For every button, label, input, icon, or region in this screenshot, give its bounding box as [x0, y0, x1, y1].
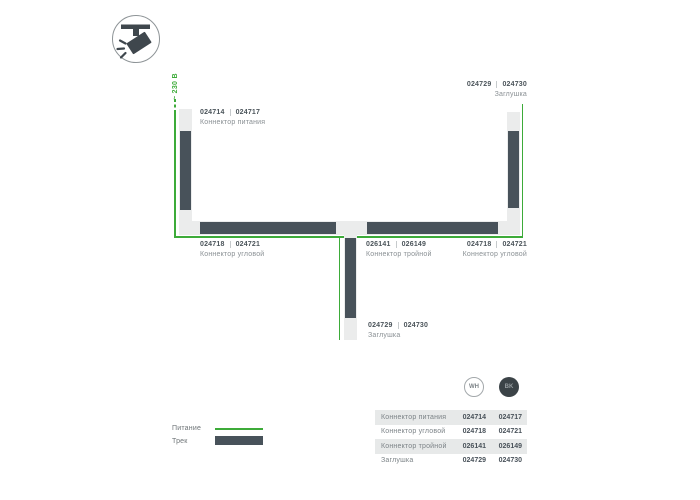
- part-codes: 024729 024730: [368, 322, 428, 329]
- label-endcap-bottom: 024729 024730 Заглушка: [368, 322, 428, 339]
- part-name: Коннектор угловой: [200, 251, 264, 258]
- code-divider: [496, 81, 497, 88]
- part-name-cell: Коннектор угловой: [375, 428, 449, 435]
- part-codes: 024718 024721: [463, 241, 527, 248]
- catalog-page: ~ 230 В 024714 024717 Коннектор питания …: [0, 0, 700, 500]
- power-line-left: [174, 111, 176, 236]
- code-wh: 024718: [467, 241, 492, 248]
- code-bk-cell: 024717: [486, 414, 527, 421]
- code-bk: 024717: [236, 109, 261, 116]
- track-segment-bottom-left: [200, 222, 336, 234]
- power-line-dashed: [174, 99, 176, 111]
- code-bk-cell: 026149: [486, 443, 527, 450]
- label-corner-connector-right: 024718 024721 Коннектор угловой: [463, 241, 527, 258]
- voltage-label: ~ 230 В: [172, 73, 179, 100]
- table-row: Заглушка 024729 024730: [375, 454, 527, 469]
- track-segment-right: [508, 131, 519, 208]
- code-divider: [396, 241, 397, 248]
- track-spotlight-glyph: [113, 16, 159, 62]
- code-wh: 024718: [200, 241, 225, 248]
- code-bk: 026149: [402, 241, 427, 248]
- part-codes: 026141 026149: [366, 241, 432, 248]
- part-name-cell: Коннектор тройной: [375, 443, 449, 450]
- part-codes: 024714 024717: [200, 109, 265, 116]
- code-wh-cell: 026141: [449, 443, 486, 450]
- part-codes: 024729 024730: [467, 81, 527, 88]
- legend-power-label: Питание: [172, 425, 201, 432]
- code-bk: 024730: [404, 322, 429, 329]
- parts-table: Коннектор питания 024714 024717 Коннекто…: [375, 410, 527, 468]
- code-bk: 024730: [502, 81, 527, 88]
- code-wh-cell: 024714: [449, 414, 486, 421]
- code-divider: [496, 241, 497, 248]
- label-power-connector: 024714 024717 Коннектор питания: [200, 109, 265, 126]
- code-bk-cell: 024730: [486, 457, 527, 464]
- part-name-cell: Заглушка: [375, 457, 449, 464]
- code-bk-cell: 024721: [486, 428, 527, 435]
- legend-power-swatch: [215, 428, 263, 430]
- table-row: Коннектор угловой 024718 024721: [375, 425, 527, 440]
- part-name: Заглушка: [467, 91, 527, 98]
- part-name-cell: Коннектор питания: [375, 414, 449, 421]
- label-triple-connector: 026141 026149 Коннектор тройной: [366, 241, 432, 258]
- part-codes: 024718 024721: [200, 241, 264, 248]
- variant-black-badge: BK: [499, 377, 519, 397]
- track-segment-bottom-right: [367, 222, 498, 234]
- table-row: Коннектор питания 024714 024717: [375, 410, 527, 425]
- code-divider: [230, 109, 231, 116]
- legend-track-swatch: [215, 436, 263, 445]
- code-bk: 024721: [502, 241, 527, 248]
- code-wh-cell: 024729: [449, 457, 486, 464]
- code-wh: 024729: [368, 322, 393, 329]
- part-name: Коннектор тройной: [366, 251, 432, 258]
- power-line-center: [339, 236, 341, 340]
- label-endcap-top: 024729 024730 Заглушка: [467, 81, 527, 98]
- track-spotlight-icon: [112, 15, 160, 63]
- part-name: Коннектор питания: [200, 119, 265, 126]
- code-bk: 024721: [236, 241, 261, 248]
- part-name: Коннектор угловой: [463, 251, 527, 258]
- code-divider: [230, 241, 231, 248]
- label-corner-connector-left: 024718 024721 Коннектор угловой: [200, 241, 264, 258]
- code-wh: 024714: [200, 109, 225, 116]
- code-wh-cell: 024718: [449, 428, 486, 435]
- variant-white-badge: WH: [464, 377, 484, 397]
- code-divider: [398, 322, 399, 329]
- part-name: Заглушка: [368, 332, 428, 339]
- track-segment-center: [345, 238, 356, 318]
- table-row: Коннектор тройной 026141 026149: [375, 439, 527, 454]
- code-wh: 026141: [366, 241, 391, 248]
- track-segment-left: [180, 131, 191, 210]
- legend-track-label: Трек: [172, 438, 188, 445]
- power-line-right: [522, 104, 524, 236]
- code-wh: 024729: [467, 81, 492, 88]
